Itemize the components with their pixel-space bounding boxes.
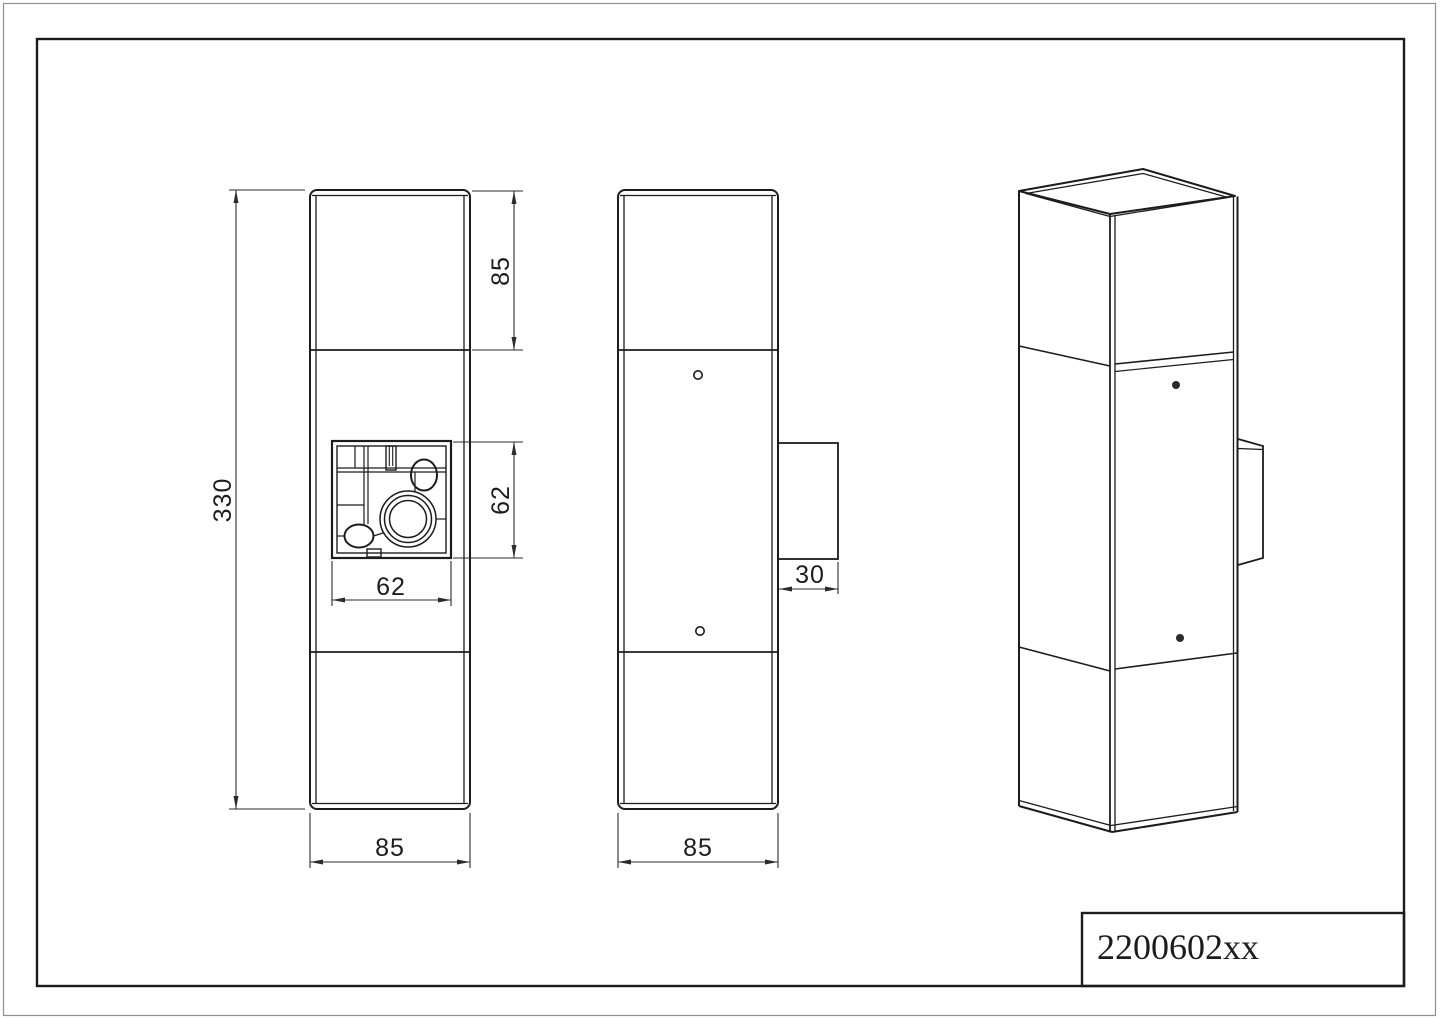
lamp-socket-middle-circle (385, 496, 432, 543)
bracket-outline (1238, 439, 1263, 565)
drawing-sheet: 330 85 62 62 85 (0, 0, 1440, 1019)
plate-outer-frame (332, 441, 451, 558)
technical-drawing-canvas: 330 85 62 62 85 (0, 0, 1440, 1019)
wall-bracket-3d (1238, 439, 1263, 565)
dim-side-depth: 85 (618, 813, 778, 868)
arrowhead (234, 796, 239, 809)
arrowhead (512, 191, 517, 204)
arrowhead (512, 545, 517, 558)
dim-label: 85 (375, 834, 405, 862)
part-number: 2200602xx (1097, 927, 1259, 967)
upper-seam-right-face-inner (1115, 360, 1234, 372)
screw-hole (696, 627, 704, 635)
side-view (618, 190, 838, 809)
arrowhead (310, 860, 323, 865)
lamp-socket-outer-circle (380, 491, 436, 547)
dim-label: 62 (487, 485, 515, 515)
arrowhead (779, 587, 792, 592)
top-face-inner-line (1026, 174, 1228, 217)
dim-label: 330 (209, 478, 237, 523)
arrowhead (765, 860, 778, 865)
arrowhead (438, 598, 451, 603)
arrowhead (234, 190, 239, 203)
dim-label: 62 (376, 573, 406, 601)
dim-top-section: 85 (472, 191, 523, 350)
bracket-top-face-line (1238, 449, 1263, 450)
bottom-edge-left (1019, 806, 1112, 832)
screw-dot (1172, 381, 1180, 389)
arrowhead (457, 860, 470, 865)
screw-boss-ellipse (345, 525, 374, 548)
dim-overall-height: 330 (209, 190, 305, 809)
dim-front-width: 85 (310, 813, 470, 868)
inner-border (37, 39, 1404, 986)
dim-bracket-depth: 30 (779, 561, 838, 594)
lower-seam-right-face (1115, 653, 1237, 669)
bottom-rim-line-left (1019, 801, 1111, 826)
arrowhead (618, 860, 631, 865)
arrowhead (512, 337, 517, 350)
upper-seam-left-face (1019, 346, 1110, 366)
arrowhead (512, 442, 517, 455)
side-outline (618, 190, 778, 809)
upper-seam-right-face (1115, 352, 1234, 364)
arrowhead (825, 587, 838, 592)
front-view (310, 190, 470, 809)
dim-label: 85 (487, 256, 515, 286)
screw-dot (1176, 634, 1184, 642)
lamp-socket-inner-circle (390, 501, 427, 538)
wall-bracket (778, 443, 838, 559)
screw-hole (694, 371, 702, 379)
lower-seam-left-face (1019, 647, 1110, 671)
cable-slot (386, 446, 396, 470)
perspective-view (1019, 169, 1263, 832)
arrowhead (332, 598, 345, 603)
dim-cutout-width: 62 (332, 561, 451, 606)
mounting-plate (332, 441, 451, 558)
dim-label: 85 (683, 834, 713, 862)
dim-label: 30 (795, 561, 825, 589)
title-block: 2200602xx (1082, 913, 1404, 986)
plate-link-line (374, 533, 384, 536)
